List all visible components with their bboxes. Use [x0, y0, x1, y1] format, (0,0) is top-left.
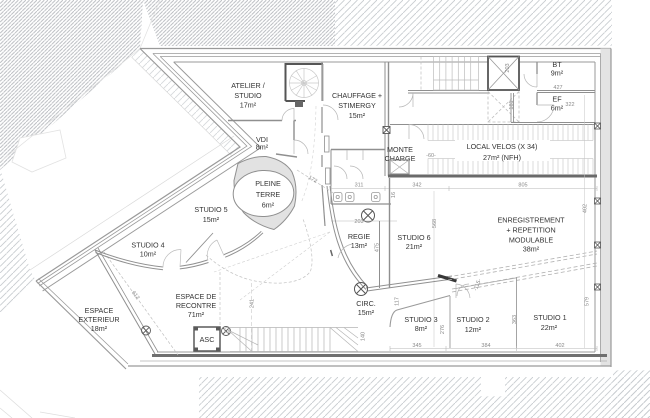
svg-text:CHAUFFAGE +: CHAUFFAGE + — [332, 91, 382, 100]
svg-text:STUDIO 5: STUDIO 5 — [194, 205, 227, 214]
svg-text:EXTERIEUR: EXTERIEUR — [78, 315, 119, 324]
svg-text:181: 181 — [509, 100, 515, 109]
svg-text:8m²: 8m² — [415, 324, 428, 333]
svg-text:STUDIO 1: STUDIO 1 — [533, 313, 566, 322]
svg-text:579: 579 — [585, 297, 591, 306]
svg-text:384: 384 — [481, 343, 490, 349]
svg-text:EF: EF — [552, 95, 562, 104]
svg-text:18m²: 18m² — [91, 324, 108, 333]
svg-text:13m²: 13m² — [351, 241, 368, 250]
svg-text:9m²: 9m² — [551, 69, 564, 78]
svg-text:140: 140 — [361, 332, 367, 341]
svg-text:ESPACE: ESPACE — [85, 306, 114, 315]
svg-text:38m²: 38m² — [523, 245, 540, 254]
svg-text:568: 568 — [432, 219, 438, 228]
svg-text:16: 16 — [391, 192, 397, 198]
svg-text:15m²: 15m² — [358, 308, 375, 317]
svg-text:MONTE: MONTE — [387, 145, 413, 154]
svg-text:+ REPETITION: + REPETITION — [506, 226, 555, 235]
svg-text:12m²: 12m² — [465, 325, 482, 334]
svg-text:402: 402 — [583, 204, 589, 213]
svg-text:ENREGISTREMENT: ENREGISTREMENT — [497, 216, 565, 225]
svg-text:STUDIO 4: STUDIO 4 — [131, 241, 164, 250]
svg-text:203: 203 — [505, 63, 511, 72]
svg-text:STUDIO 6: STUDIO 6 — [397, 233, 430, 242]
svg-text:6m²: 6m² — [262, 201, 275, 210]
svg-text:22m²: 22m² — [541, 323, 558, 332]
svg-text:15m²: 15m² — [203, 215, 220, 224]
svg-text:ATELIER /: ATELIER / — [231, 81, 264, 90]
svg-text:805: 805 — [518, 183, 527, 189]
svg-text:-60-: -60- — [426, 153, 436, 159]
svg-text:402: 402 — [555, 343, 564, 349]
svg-text:ESPACE DE: ESPACE DE — [176, 292, 217, 301]
svg-text:17m²: 17m² — [240, 101, 257, 110]
svg-text:TERRE: TERRE — [256, 190, 281, 199]
svg-text:RECONTRE: RECONTRE — [176, 301, 217, 310]
svg-text:PLEINE: PLEINE — [255, 179, 281, 188]
svg-text:27m² (NFH): 27m² (NFH) — [483, 153, 521, 162]
svg-text:342: 342 — [412, 183, 421, 189]
svg-text:MODULABLE: MODULABLE — [509, 236, 554, 245]
svg-text:ASC: ASC — [200, 335, 215, 344]
svg-text:117: 117 — [395, 297, 401, 306]
svg-text:241: 241 — [250, 299, 256, 308]
svg-text:427: 427 — [553, 85, 562, 91]
svg-text:345: 345 — [412, 343, 421, 349]
svg-text:LOCAL VELOS (X 34): LOCAL VELOS (X 34) — [467, 142, 538, 151]
svg-text:311: 311 — [355, 183, 364, 189]
svg-text:21m²: 21m² — [406, 242, 423, 251]
svg-text:REGIE: REGIE — [348, 232, 371, 241]
svg-text:STIMERGY: STIMERGY — [338, 101, 376, 110]
svg-text:STUDIO 2: STUDIO 2 — [456, 315, 489, 324]
svg-text:8m²: 8m² — [256, 143, 269, 152]
svg-text:CIRC.: CIRC. — [356, 299, 376, 308]
svg-text:71m²: 71m² — [188, 310, 205, 319]
svg-text:CHARGE: CHARGE — [385, 154, 416, 163]
svg-text:276: 276 — [440, 325, 446, 334]
svg-text:15m²: 15m² — [349, 111, 366, 120]
svg-text:322: 322 — [565, 102, 574, 108]
svg-text:STUDIO 3: STUDIO 3 — [404, 315, 437, 324]
svg-text:10m²: 10m² — [140, 250, 157, 259]
svg-text:203: 203 — [354, 219, 363, 225]
svg-text:363: 363 — [512, 315, 518, 324]
svg-text:STUDIO: STUDIO — [234, 91, 262, 100]
